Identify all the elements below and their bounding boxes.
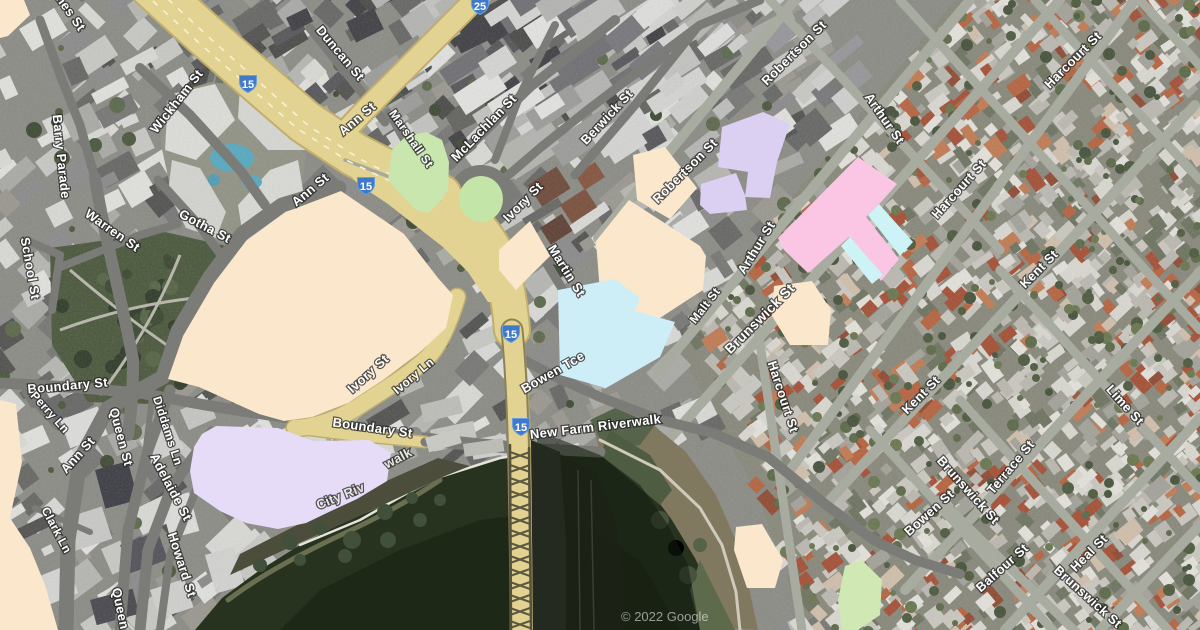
svg-text:15: 15 xyxy=(505,329,517,341)
svg-text:25: 25 xyxy=(474,1,486,13)
svg-text:© 2022 Google: © 2022 Google xyxy=(621,609,709,624)
svg-text:15: 15 xyxy=(360,181,372,193)
svg-text:15: 15 xyxy=(242,79,254,91)
svg-text:15: 15 xyxy=(515,422,527,434)
